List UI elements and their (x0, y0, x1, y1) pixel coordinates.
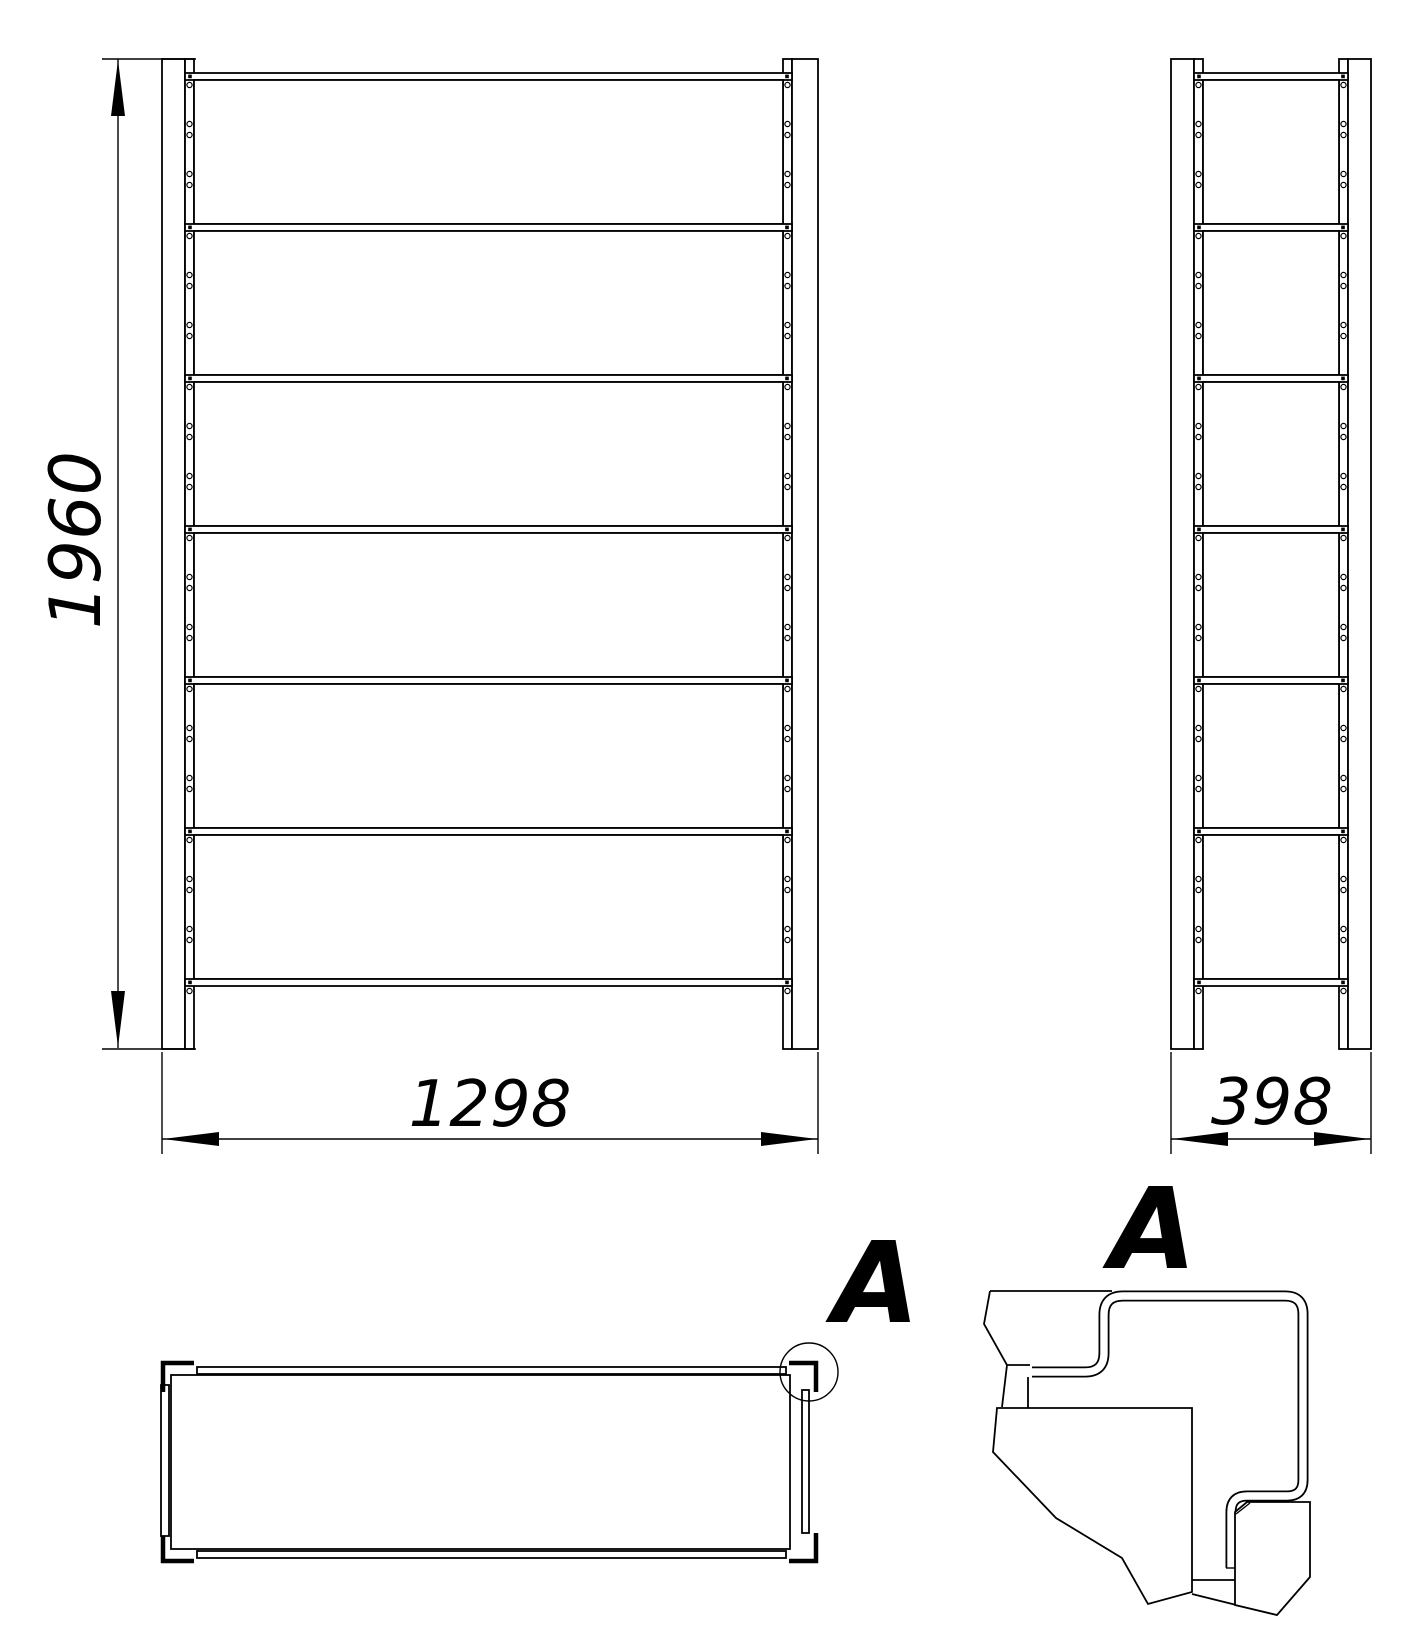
shelf-strip (1194, 375, 1348, 382)
rivet-hole (187, 283, 192, 288)
rivet-hole (187, 233, 192, 238)
back-strip-section (984, 1291, 1112, 1408)
rivet-hole (785, 736, 790, 741)
rivet-hole (187, 132, 192, 137)
rivet-hole (1341, 182, 1346, 187)
arrow-up-icon (111, 60, 125, 116)
weld-mark (1341, 981, 1345, 985)
front-right-post (792, 59, 818, 1049)
shelf-strip (1194, 224, 1348, 231)
rivet-hole (187, 624, 192, 629)
rivet-hole (1196, 535, 1201, 540)
rivet-hole (1341, 837, 1346, 842)
weld-mark (188, 830, 192, 834)
detail-view-label: A (1102, 1165, 1197, 1295)
corner-post-bottom-right (789, 1533, 816, 1561)
rivet-hole (1196, 585, 1201, 590)
top-view: A (161, 1219, 919, 1561)
shelf-panel (194, 835, 783, 979)
rivet-hole (1341, 624, 1346, 629)
rivet-hole (785, 423, 790, 428)
post-lower-section (1235, 1502, 1310, 1615)
rivet-hole (187, 535, 192, 540)
weld-mark (188, 75, 192, 79)
rivet-hole (1196, 635, 1201, 640)
rivet-hole (187, 272, 192, 277)
rivet-hole (187, 937, 192, 942)
shelf-strip (185, 375, 792, 382)
rivet-hole (1196, 272, 1201, 277)
weld-mark (1197, 679, 1201, 683)
rivet-hole (1341, 926, 1346, 931)
weld-mark (1341, 679, 1345, 683)
rivet-hole (785, 988, 790, 993)
weld-mark (1197, 226, 1201, 230)
rivet-hole (1196, 182, 1201, 187)
rivet-hole (1196, 837, 1201, 842)
top-view-back-strip (197, 1367, 786, 1374)
rivet-hole (1196, 333, 1201, 338)
rivet-hole (187, 988, 192, 993)
rivet-hole (1341, 574, 1346, 579)
weld-mark (188, 226, 192, 230)
side-left-post-flange (1194, 59, 1203, 1049)
weld-mark (188, 377, 192, 381)
weld-mark (188, 528, 192, 532)
rivet-hole (785, 725, 790, 730)
rivet-hole (785, 585, 790, 590)
rivet-hole (1196, 233, 1201, 238)
rivet-hole (785, 132, 790, 137)
rivet-hole (1341, 283, 1346, 288)
rivet-hole (785, 272, 790, 277)
side-view (1171, 59, 1371, 1049)
weld-mark (1197, 75, 1201, 79)
front-left-post (162, 59, 185, 1049)
rivet-hole (1341, 736, 1346, 741)
rivet-hole (785, 887, 790, 892)
rivet-hole (1196, 775, 1201, 780)
weld-mark (1197, 981, 1201, 985)
side-shelves (1194, 73, 1348, 994)
rivet-hole (1341, 333, 1346, 338)
rivet-hole (1196, 423, 1201, 428)
weld-mark (785, 830, 789, 834)
shelf-panel (1203, 231, 1339, 375)
side-right-post-flange (1339, 59, 1348, 1049)
shelf-panel (194, 684, 783, 828)
dim-depth-label: 398 (1211, 1066, 1333, 1140)
rivet-hole (187, 876, 192, 881)
rivet-hole (187, 182, 192, 187)
weld-mark (1341, 377, 1345, 381)
weld-mark (188, 981, 192, 985)
shelf-panel (1203, 533, 1339, 677)
rivet-hole (785, 434, 790, 439)
rivet-hole (1341, 233, 1346, 238)
rivet-hole (1196, 384, 1201, 389)
rivet-hole (1341, 786, 1346, 791)
rivet-hole (187, 926, 192, 931)
rivet-hole (187, 434, 192, 439)
shelf-strip (185, 526, 792, 533)
rivet-hole (1341, 887, 1346, 892)
shelf-panel (1203, 382, 1339, 526)
rivet-hole (785, 121, 790, 126)
weld-mark (1341, 528, 1345, 532)
shelf-strip (1194, 979, 1348, 986)
shelf-strip (1194, 526, 1348, 533)
rivet-hole (785, 624, 790, 629)
shelf-strip (185, 828, 792, 835)
shelf-strip (1194, 677, 1348, 684)
rivet-hole (1196, 937, 1201, 942)
rivet-hole (785, 937, 790, 942)
rivet-hole (785, 876, 790, 881)
rivet-hole (187, 384, 192, 389)
rivet-hole (785, 484, 790, 489)
rivet-hole (187, 171, 192, 176)
shelf-panel (1203, 835, 1339, 979)
weld-mark (1341, 75, 1345, 79)
top-view-shelf-panel (171, 1375, 790, 1549)
rivet-hole (1341, 937, 1346, 942)
rivet-hole (1341, 171, 1346, 176)
rivet-hole (785, 322, 790, 327)
shelf-strip (185, 224, 792, 231)
rivet-hole (785, 535, 790, 540)
dimension-width: 1298 (162, 1052, 818, 1154)
rivet-hole (1341, 988, 1346, 993)
rivet-hole (187, 775, 192, 780)
rivet-hole (1341, 423, 1346, 428)
rivet-hole (785, 82, 790, 87)
rivet-hole (187, 786, 192, 791)
rivet-hole (1341, 635, 1346, 640)
weld-mark (785, 75, 789, 79)
technical-drawing: 1960 1298 398 A A (0, 0, 1428, 1632)
rivet-hole (1341, 484, 1346, 489)
rivet-hole (1341, 585, 1346, 590)
rivet-hole (1196, 786, 1201, 791)
shelf-strip (1194, 73, 1348, 80)
rivet-hole (187, 333, 192, 338)
shelf-panel (1203, 684, 1339, 828)
rivet-hole (187, 574, 192, 579)
rivet-hole (1196, 574, 1201, 579)
rivet-hole (785, 786, 790, 791)
top-view-right-strip (802, 1390, 809, 1533)
shelf-panel (1203, 80, 1339, 224)
arrow-down-icon (111, 991, 125, 1047)
rivet-hole (1341, 434, 1346, 439)
rivet-hole (1196, 283, 1201, 288)
drawing-canvas: 1960 1298 398 A A (0, 0, 1428, 1632)
rivet-hole (1196, 686, 1201, 691)
rivet-hole (1196, 121, 1201, 126)
dimension-depth: 398 (1171, 1052, 1371, 1154)
dim-width-label: 1298 (409, 1068, 572, 1142)
rivet-hole (1341, 121, 1346, 126)
rivet-hole (187, 686, 192, 691)
weld-mark (785, 528, 789, 532)
front-right-post-flange (783, 59, 792, 1049)
rivet-hole (1196, 171, 1201, 176)
rivet-hole (1341, 272, 1346, 277)
shelf-strip (185, 979, 792, 986)
rivet-hole (187, 484, 192, 489)
rivet-hole (785, 837, 790, 842)
rivet-hole (187, 736, 192, 741)
rivet-hole (1196, 624, 1201, 629)
side-right-post (1348, 59, 1371, 1049)
rivet-hole (785, 574, 790, 579)
rivet-hole (187, 887, 192, 892)
weld-mark (785, 226, 789, 230)
weld-mark (1341, 226, 1345, 230)
top-view-front-strip (197, 1551, 786, 1558)
arrow-right-icon (761, 1132, 817, 1146)
rivet-hole (1341, 725, 1346, 730)
rivet-hole (785, 775, 790, 780)
shelf-strip (185, 677, 792, 684)
weld-mark (1197, 830, 1201, 834)
rivet-hole (187, 473, 192, 478)
rivet-hole (1196, 725, 1201, 730)
rivet-hole (187, 82, 192, 87)
rivet-hole (785, 635, 790, 640)
rivet-hole (785, 926, 790, 931)
rivet-hole (1196, 434, 1201, 439)
weld-mark (785, 679, 789, 683)
rivet-hole (785, 333, 790, 338)
rivet-hole (1196, 473, 1201, 478)
front-shelves (185, 73, 792, 994)
rivet-hole (785, 686, 790, 691)
weld-mark (1197, 528, 1201, 532)
shelf-panel-section (993, 1408, 1192, 1604)
rivet-hole (187, 423, 192, 428)
rivet-hole (1196, 322, 1201, 327)
rivet-hole (187, 635, 192, 640)
rivet-hole (1196, 132, 1201, 137)
rivet-hole (1196, 876, 1201, 881)
corner-post-top-right (789, 1363, 816, 1392)
rivet-hole (1196, 988, 1201, 993)
rivet-hole (1341, 876, 1346, 881)
weld-mark (1341, 830, 1345, 834)
dim-height-label: 1960 (35, 451, 117, 629)
shelf-panel (194, 382, 783, 526)
rivet-hole (187, 725, 192, 730)
rivet-hole (1196, 736, 1201, 741)
detail-marker-label: A (825, 1219, 920, 1349)
rivet-hole (187, 121, 192, 126)
shelf-panel (194, 80, 783, 224)
rivet-hole (1196, 887, 1201, 892)
rivet-hole (1341, 473, 1346, 478)
rivet-hole (1341, 535, 1346, 540)
rivet-hole (187, 585, 192, 590)
rivet-hole (1196, 82, 1201, 87)
rivet-hole (785, 283, 790, 288)
arrow-left-icon (163, 1132, 219, 1146)
side-left-post (1171, 59, 1194, 1049)
front-left-post-flange (185, 59, 194, 1049)
weld-mark (1197, 377, 1201, 381)
rivet-hole (785, 384, 790, 389)
rivet-hole (785, 473, 790, 478)
weld-mark (785, 981, 789, 985)
detail-view-a: A (984, 1165, 1310, 1615)
rivet-hole (785, 182, 790, 187)
rivet-hole (1341, 322, 1346, 327)
rivet-hole (1341, 132, 1346, 137)
rivet-hole (1341, 775, 1346, 780)
rivet-hole (1341, 686, 1346, 691)
front-view (162, 59, 818, 1049)
rivet-hole (1341, 82, 1346, 87)
rivet-hole (1196, 926, 1201, 931)
top-view-left-strip (161, 1385, 169, 1536)
shelf-strip (185, 73, 792, 80)
rivet-hole (1196, 484, 1201, 489)
shelf-strip (1194, 828, 1348, 835)
shelf-panel (194, 533, 783, 677)
rivet-hole (187, 322, 192, 327)
weld-mark (188, 679, 192, 683)
rivet-hole (785, 233, 790, 238)
weld-mark (785, 377, 789, 381)
shelf-panel (194, 231, 783, 375)
rivet-hole (1341, 384, 1346, 389)
rivet-hole (187, 837, 192, 842)
rivet-hole (785, 171, 790, 176)
